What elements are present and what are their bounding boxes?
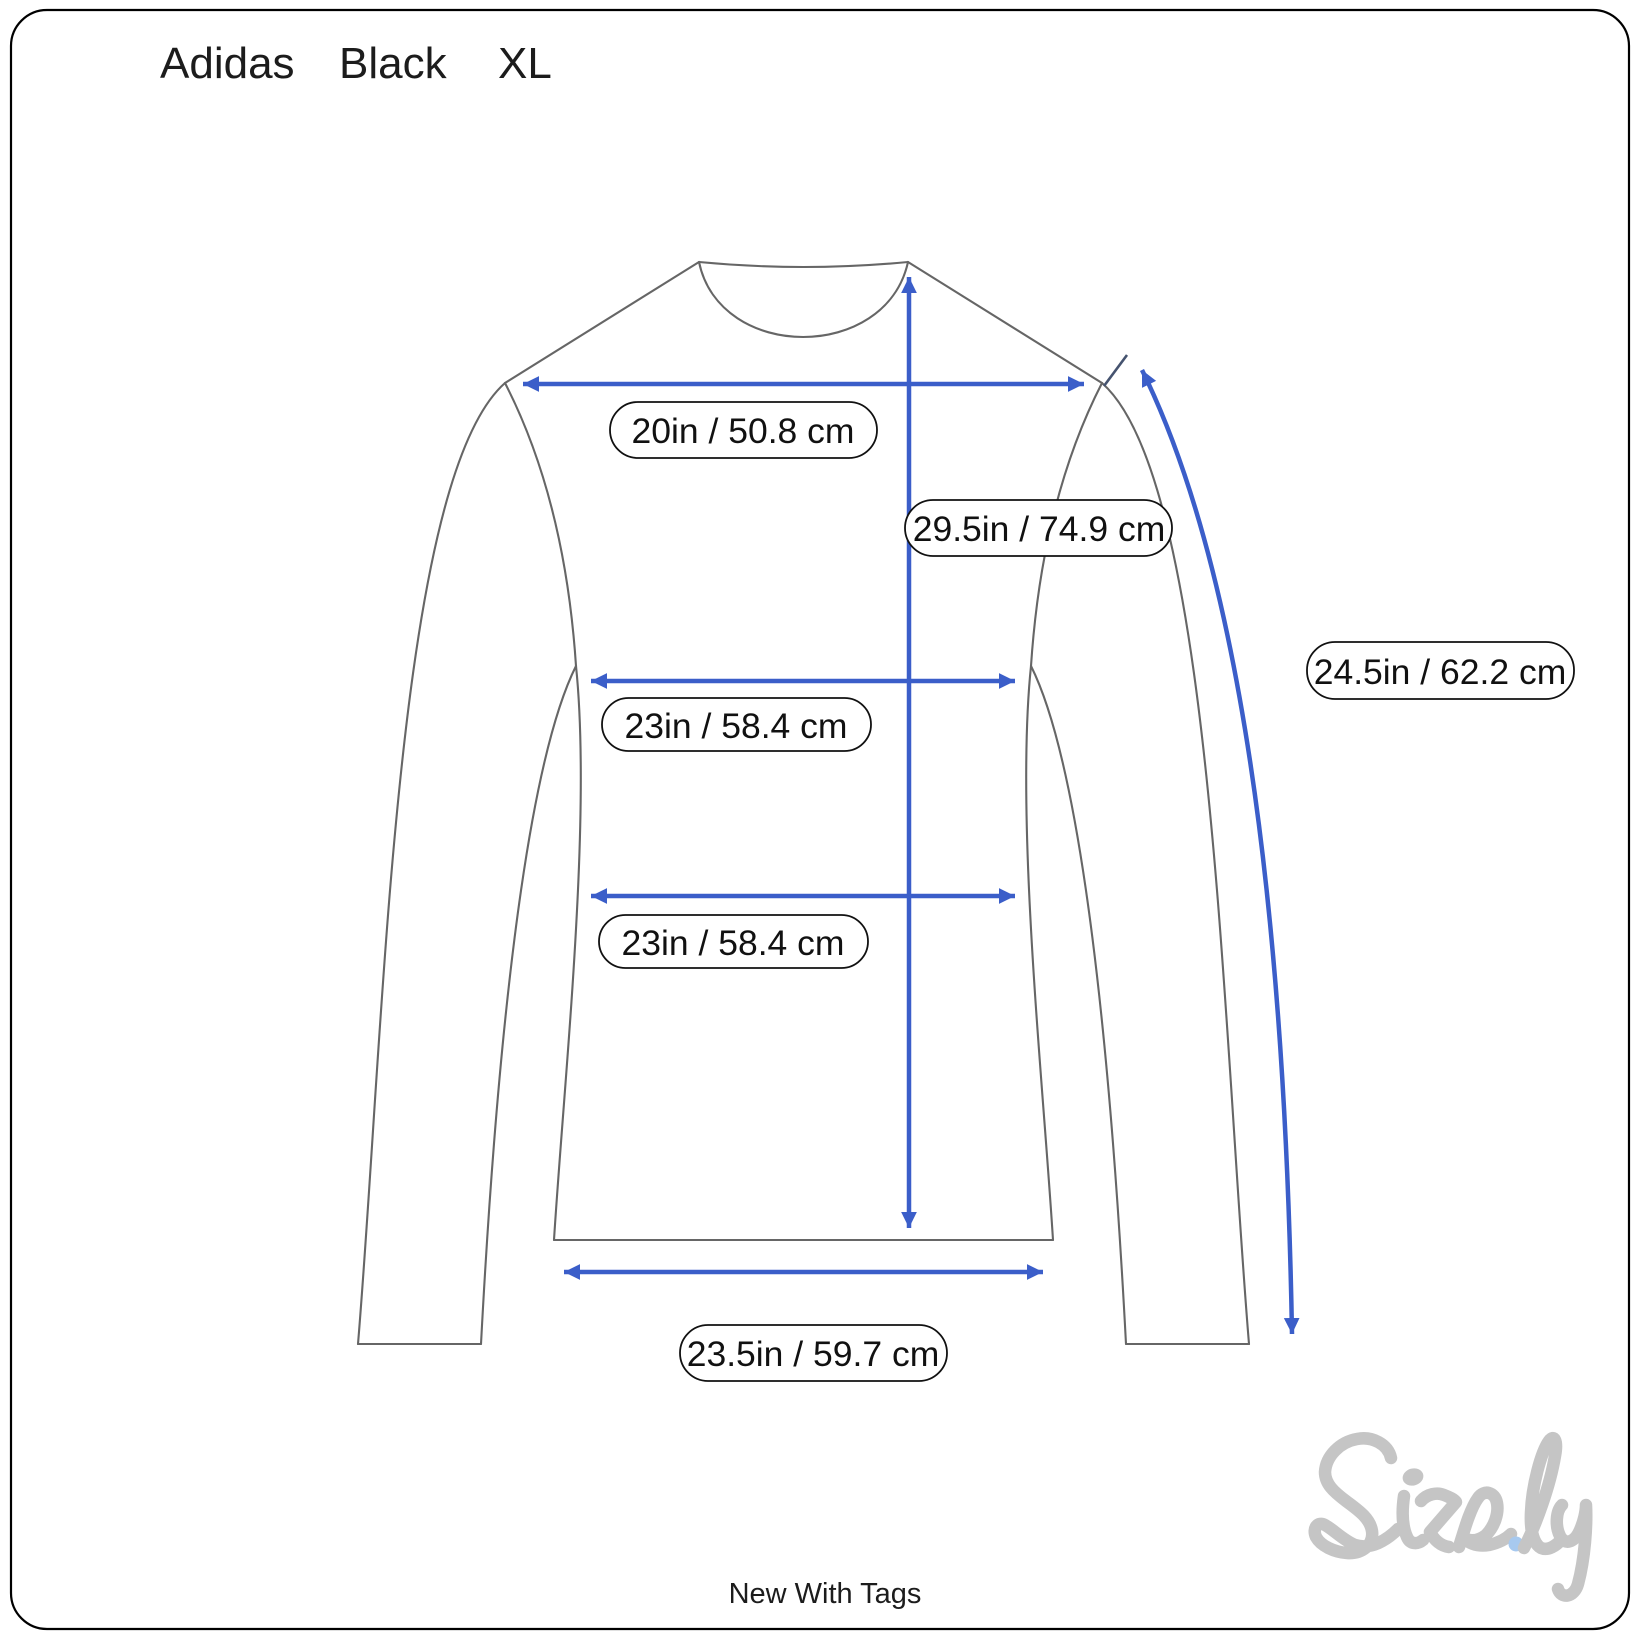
svg-text:29.5in / 74.9 cm: 29.5in / 74.9 cm xyxy=(913,509,1166,549)
svg-text:XL: XL xyxy=(498,39,552,88)
svg-text:20in / 50.8 cm: 20in / 50.8 cm xyxy=(632,411,855,451)
svg-text:24.5in / 62.2 cm: 24.5in / 62.2 cm xyxy=(1314,652,1567,692)
svg-text:Black: Black xyxy=(339,39,448,88)
svg-text:Adidas: Adidas xyxy=(160,39,295,88)
svg-text:23in / 58.4 cm: 23in / 58.4 cm xyxy=(625,706,848,746)
svg-text:23.5in / 59.7 cm: 23.5in / 59.7 cm xyxy=(687,1334,940,1374)
svg-text:New With Tags: New With Tags xyxy=(729,1578,922,1610)
svg-text:23in / 58.4 cm: 23in / 58.4 cm xyxy=(622,923,845,963)
